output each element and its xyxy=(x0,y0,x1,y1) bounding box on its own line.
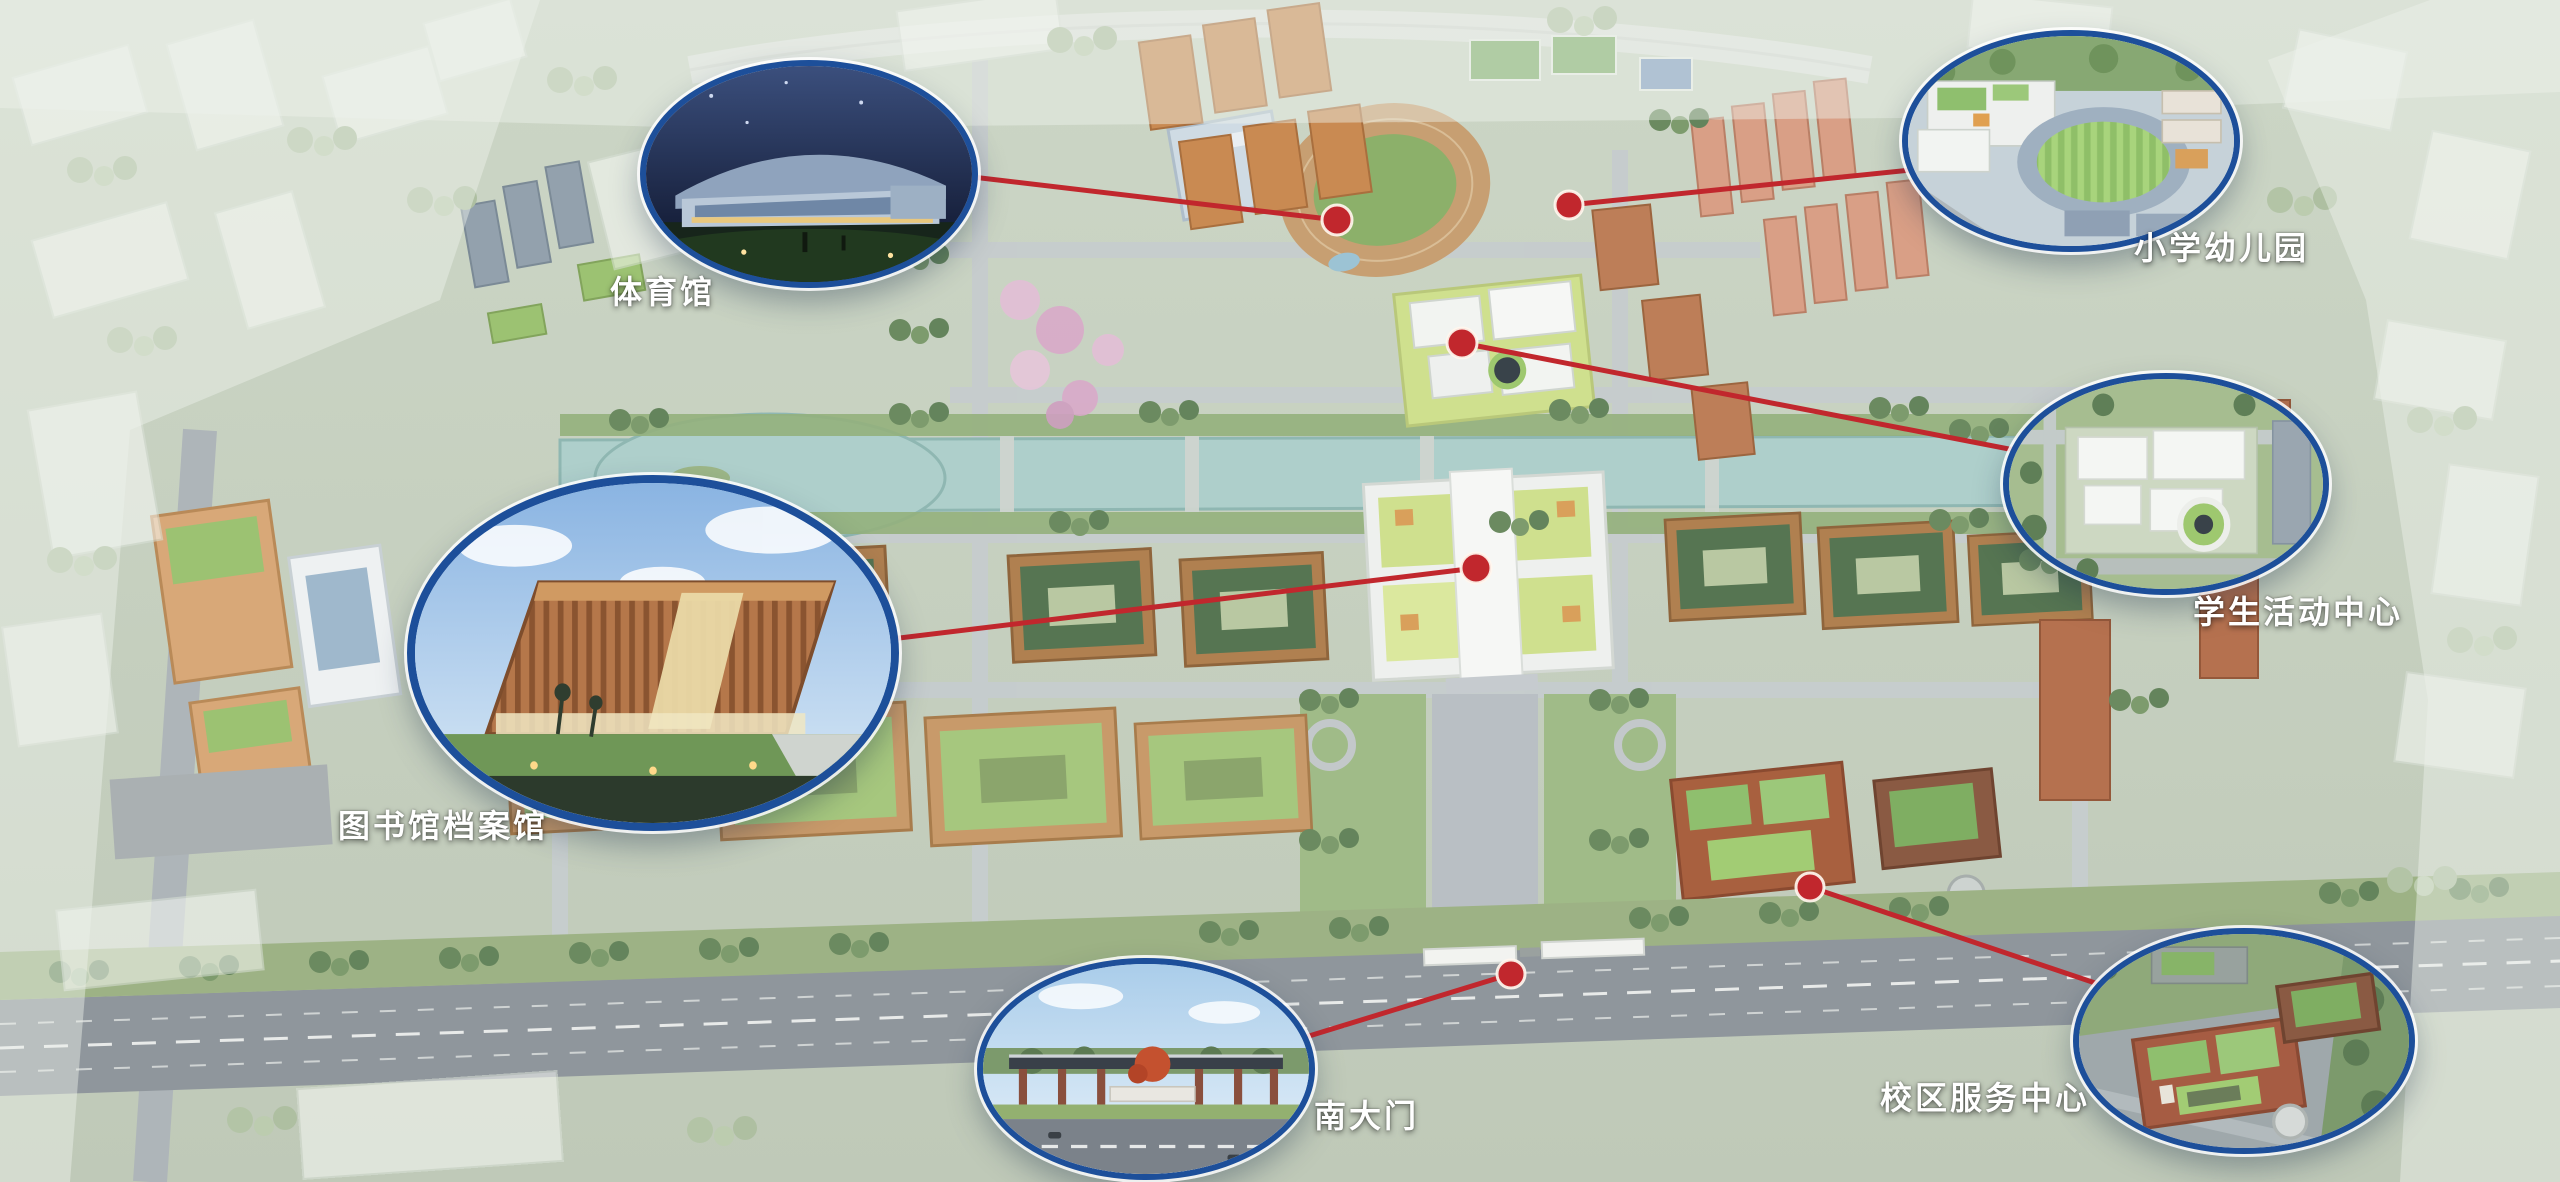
label-student-activity-center: 学生活动中心 xyxy=(2193,596,2403,628)
campus-masterplan-canvas: 体育馆 小学幼儿园 学生活动中心 图书馆档案馆 南大门 校区服务中心 xyxy=(0,0,2560,1182)
callout-campus-service-center-photo xyxy=(2073,928,2415,1154)
label-south-gate: 南大门 xyxy=(1314,1100,1419,1132)
callout-library-archives-photo xyxy=(407,475,899,831)
callout-student-activity-center-photo xyxy=(2003,373,2329,595)
label-library-archives: 图书馆档案馆 xyxy=(338,810,548,842)
label-campus-service-center: 校区服务中心 xyxy=(1880,1082,2090,1114)
callout-primary-school-photo xyxy=(1902,30,2240,252)
label-primary-school: 小学幼儿园 xyxy=(2134,232,2309,264)
callout-gymnasium-photo xyxy=(640,60,978,288)
label-gymnasium: 体育馆 xyxy=(610,276,715,308)
callout-south-gate-photo xyxy=(977,958,1315,1180)
